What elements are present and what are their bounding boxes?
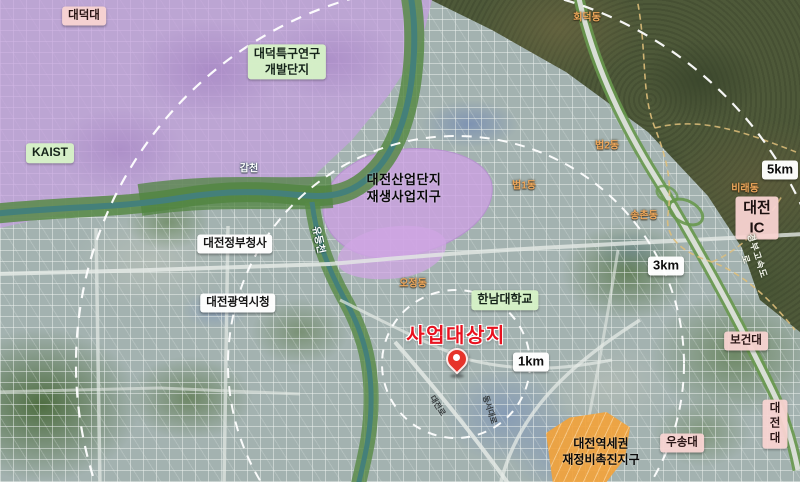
map-label-daejeon-ro: 대전로 [427, 394, 448, 418]
map-label-ring-1km: 1km [513, 353, 549, 372]
map-label-daejeon-univ: 대전대 [763, 400, 788, 449]
map-label-kaist: KAIST [26, 143, 74, 163]
map-label-ojeong-dong: 오정동 [399, 278, 427, 291]
map-label-ring-5km: 5km [762, 161, 798, 180]
map-label-woosong-univ: 우송대 [660, 434, 704, 453]
map-label-daedeok-univ: 대덕대 [62, 7, 106, 26]
map-label-project-site: 사업대상지 [406, 323, 506, 349]
map-label-birae-dong: 비래동 [731, 183, 759, 196]
map-label-research-complex: 대덕특구연구 개발단지 [248, 44, 326, 79]
map-label-station-district: 대전역세권 재정비촉진지구 [562, 436, 639, 467]
map-label-songchon-dong: 송촌동 [630, 210, 658, 223]
map-label-bogeon-univ: 보건대 [724, 332, 768, 351]
map-label-gov-complex: 대전정부청사 [197, 235, 272, 254]
map-label-hoedeok-dong: 회덕동 [573, 12, 601, 25]
map-label-beop2-dong: 법2동 [595, 140, 619, 153]
map-label-gapcheon-river: 갑천 [240, 163, 258, 176]
map-label-hannam-univ: 한남대학교 [471, 290, 538, 310]
map-label-city-hall: 대전광역시청 [200, 294, 275, 313]
map-label-dongseo-daero: 동서대로 [480, 394, 499, 425]
map-label-industrial-complex: 대전산업단지 재생사업지구 [367, 172, 442, 206]
map-labels: 대덕대대덕특구연구 개발단지KAIST갑천대전산업단지 재생사업지구대전정부청사… [0, 0, 800, 482]
map-label-ring-3km: 3km [648, 257, 684, 276]
map-label-beop1-dong: 법1동 [512, 180, 536, 193]
map-label-daejeon-ic: 대전IC [736, 197, 779, 240]
satellite-map: 대덕대대덕특구연구 개발단지KAIST갑천대전산업단지 재생사업지구대전정부청사… [0, 0, 800, 482]
map-label-yudeung-river: 유등천 [309, 225, 327, 255]
